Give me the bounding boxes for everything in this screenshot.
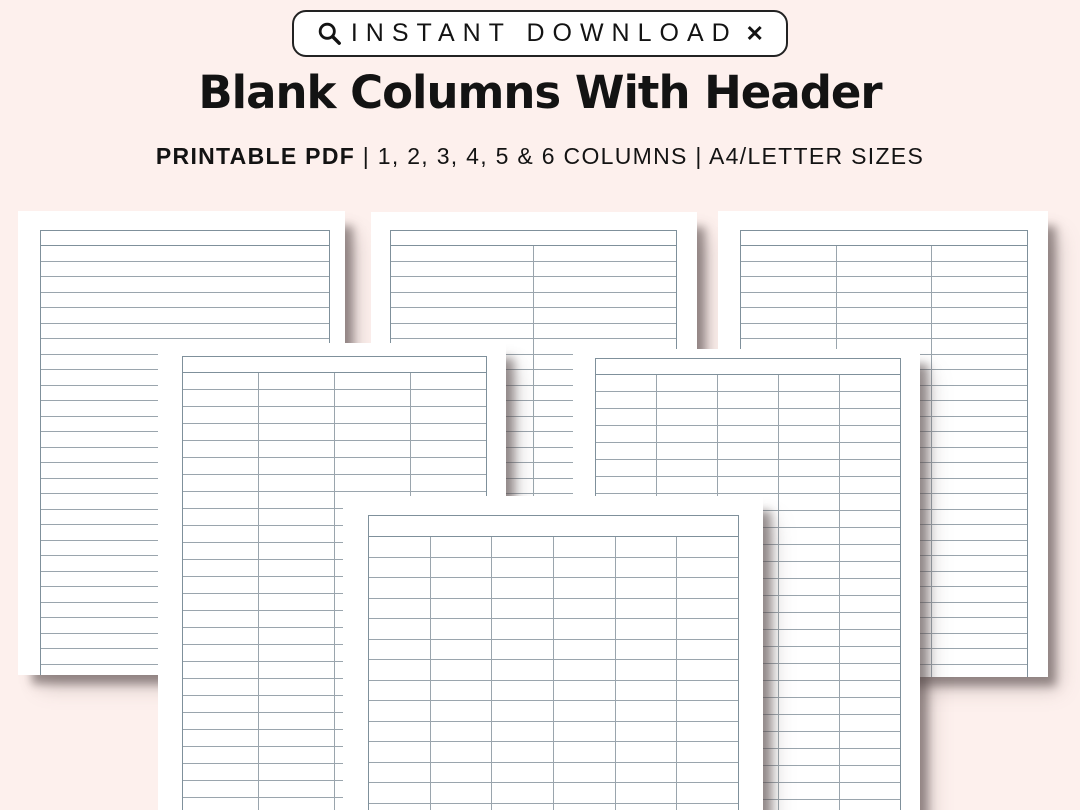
table-cell (183, 696, 259, 712)
table-cell (431, 701, 493, 721)
table-cell (41, 308, 329, 323)
table-cell (391, 324, 534, 339)
table-cell (369, 537, 431, 557)
table-cell (369, 619, 431, 639)
table-cell (779, 528, 840, 544)
table-cell (616, 537, 678, 557)
table-cell (616, 763, 678, 783)
table-cell (677, 722, 738, 742)
table-cell (183, 679, 259, 695)
table-cell (596, 426, 657, 442)
table-cell (335, 458, 411, 474)
table-cell (259, 543, 335, 559)
table-row (369, 701, 738, 722)
table-cell (718, 477, 779, 493)
table-cell (616, 599, 678, 619)
table-cell (431, 537, 493, 557)
table-cell (554, 558, 616, 578)
table-cell (840, 596, 900, 612)
table-cell (779, 715, 840, 731)
table-cell (779, 783, 840, 799)
table-cell (837, 324, 933, 339)
table-cell (677, 681, 738, 701)
table-cell (616, 722, 678, 742)
table-cell (554, 537, 616, 557)
table-header-row (41, 231, 329, 246)
table-row (183, 407, 486, 424)
table-cell (657, 460, 718, 476)
table-cell (596, 409, 657, 425)
table-cell (369, 681, 431, 701)
table-cell (183, 645, 259, 661)
table-cell (718, 375, 779, 391)
table-cell (259, 475, 335, 491)
table-cell (183, 764, 259, 780)
table-cell (932, 603, 1027, 618)
table-cell (369, 742, 431, 762)
table-cell (41, 324, 329, 339)
table-cell (837, 262, 933, 277)
table-cell (335, 424, 411, 440)
table-cell (183, 390, 259, 406)
table-cell (259, 628, 335, 644)
table-cell (411, 373, 486, 389)
table-cell (779, 375, 840, 391)
table-cell (779, 409, 840, 425)
table-row (391, 262, 676, 278)
table-cell (741, 324, 837, 339)
table-row (369, 783, 738, 804)
table-cell (431, 783, 493, 803)
table-cell (492, 681, 554, 701)
table-cell (534, 324, 676, 339)
table-cell (779, 392, 840, 408)
table-cell (183, 577, 259, 593)
table-cell (932, 572, 1027, 587)
table-cell (259, 764, 335, 780)
table-cell (718, 443, 779, 459)
table-cell (259, 577, 335, 593)
table-cell (492, 599, 554, 619)
table-cell (779, 664, 840, 680)
table-row (41, 293, 329, 309)
table-cell (840, 545, 900, 561)
table-cell (779, 766, 840, 782)
table-cell (840, 511, 900, 527)
table-cell (431, 578, 493, 598)
table-cell (779, 800, 840, 810)
table-cell (718, 460, 779, 476)
table-cell (677, 640, 738, 660)
table-cell (677, 701, 738, 721)
table-cell (616, 804, 678, 810)
table-cell (335, 475, 411, 491)
table-row (391, 246, 676, 262)
table-cell (677, 537, 738, 557)
table-cell (616, 640, 678, 660)
table-cell (183, 424, 259, 440)
table-cell (779, 681, 840, 697)
table-header-row (391, 231, 676, 246)
table-cell (779, 647, 840, 663)
table-cell (431, 640, 493, 660)
table-cell (431, 558, 493, 578)
table-row (183, 441, 486, 458)
table-cell (840, 698, 900, 714)
table-cell (840, 375, 900, 391)
table-cell (492, 558, 554, 578)
table-cell (779, 511, 840, 527)
table-cell (932, 339, 1027, 354)
table-cell (677, 578, 738, 598)
table-row (41, 308, 329, 324)
table-cell (554, 763, 616, 783)
table-cell (554, 619, 616, 639)
table-cell (369, 701, 431, 721)
table-cell (183, 509, 259, 525)
table-cell (741, 293, 837, 308)
table-cell (677, 783, 738, 803)
table-row (183, 373, 486, 390)
table-cell (840, 681, 900, 697)
table-cell (554, 742, 616, 762)
table-cell (677, 742, 738, 762)
table-row (596, 443, 900, 460)
table-cell (779, 460, 840, 476)
table-cell (741, 246, 837, 261)
table-cell (837, 308, 933, 323)
subtitle-rest: | 1, 2, 3, 4, 5 & 6 COLUMNS | A4/LETTER … (355, 143, 924, 169)
table-cell (431, 619, 493, 639)
table-cell (431, 722, 493, 742)
table-cell (779, 562, 840, 578)
table-cell (596, 392, 657, 408)
table-cell (259, 611, 335, 627)
table-cell (41, 277, 329, 292)
table-cell (259, 424, 335, 440)
table-cell (932, 587, 1027, 602)
table-cell (41, 262, 329, 277)
table-cell (718, 426, 779, 442)
table-row (741, 246, 1027, 262)
table-cell (492, 578, 554, 598)
table-cell (492, 619, 554, 639)
table-cell (932, 541, 1027, 556)
table-row (741, 293, 1027, 309)
table-cell (932, 494, 1027, 509)
table-cell (492, 640, 554, 660)
table-row (596, 375, 900, 392)
table-cell (554, 722, 616, 742)
table-row (596, 392, 900, 409)
table-cell (779, 732, 840, 748)
table-row (391, 277, 676, 293)
table-cell (677, 599, 738, 619)
table-cell (259, 594, 335, 610)
table-row (741, 324, 1027, 340)
table-cell (431, 681, 493, 701)
subtitle-lead: PRINTABLE PDF (156, 143, 355, 169)
table-cell (932, 386, 1027, 401)
table-cell (840, 783, 900, 799)
table-cell (431, 763, 493, 783)
table-cell (932, 277, 1027, 292)
table-cell (335, 390, 411, 406)
table-cell (932, 246, 1027, 261)
table-header-row (741, 231, 1027, 246)
table-cell (534, 262, 676, 277)
table-cell (492, 660, 554, 680)
table-cell (779, 630, 840, 646)
table-row (41, 246, 329, 262)
search-icon (316, 20, 343, 47)
table-cell (183, 781, 259, 797)
table-cell (840, 800, 900, 810)
table-cell (259, 441, 335, 457)
table-cell (183, 730, 259, 746)
table-row (369, 640, 738, 661)
table-cell (779, 749, 840, 765)
table-cell (369, 640, 431, 660)
table-cell (932, 355, 1027, 370)
table-cell (183, 373, 259, 389)
table-cell (259, 458, 335, 474)
table-row (596, 460, 900, 477)
table-cell (837, 246, 933, 261)
table-cell (932, 293, 1027, 308)
table-cell (932, 432, 1027, 447)
table-cell (431, 599, 493, 619)
table-cell (411, 424, 486, 440)
table-cell (335, 441, 411, 457)
table-row (369, 558, 738, 579)
table-row (183, 424, 486, 441)
table-cell (554, 701, 616, 721)
table-cell (616, 783, 678, 803)
table-cell (840, 766, 900, 782)
table-cell (492, 804, 554, 810)
table-cell (840, 579, 900, 595)
table-row (741, 308, 1027, 324)
listing-image: INSTANT DOWNLOAD ✕ Blank Columns With He… (0, 0, 1080, 810)
table-cell (259, 662, 335, 678)
table-cell (369, 599, 431, 619)
table-cell (183, 611, 259, 627)
page-title: Blank Columns With Header (0, 63, 1080, 123)
table-cell (840, 664, 900, 680)
table-cell (779, 443, 840, 459)
table-cell (183, 407, 259, 423)
table-cell (259, 373, 335, 389)
table-cell (741, 262, 837, 277)
table-cell (840, 528, 900, 544)
table-row (369, 578, 738, 599)
table-row (369, 599, 738, 620)
table-cell (554, 681, 616, 701)
table-cell (41, 246, 329, 261)
table-cell (259, 713, 335, 729)
table-cell (741, 277, 837, 292)
table-cell (259, 679, 335, 695)
table-cell (431, 804, 493, 810)
table-cell (492, 722, 554, 742)
table-header-row (369, 516, 738, 537)
table-cell (616, 660, 678, 680)
table-cell (932, 370, 1027, 385)
table-cell (932, 448, 1027, 463)
table-cell (183, 475, 259, 491)
table-cell (411, 441, 486, 457)
table-cell (677, 804, 738, 810)
table-cell (932, 401, 1027, 416)
table-cell (677, 660, 738, 680)
table-cell (369, 578, 431, 598)
table-cell (259, 407, 335, 423)
table-cell (391, 293, 534, 308)
table-cell (932, 525, 1027, 540)
table-cell (677, 619, 738, 639)
close-icon: ✕ (746, 23, 764, 45)
table-row (596, 409, 900, 426)
table-cell (391, 246, 534, 261)
table-cell (840, 613, 900, 629)
table-cell (492, 742, 554, 762)
table-cell (840, 477, 900, 493)
table-cell (369, 763, 431, 783)
table-cell (657, 443, 718, 459)
paper-mockup-6-columns (343, 496, 763, 810)
subtitle: PRINTABLE PDF | 1, 2, 3, 4, 5 & 6 COLUMN… (0, 141, 1080, 171)
table-cell (616, 681, 678, 701)
table-cell (840, 715, 900, 731)
table-cell (411, 390, 486, 406)
table-row (391, 293, 676, 309)
table-cell (779, 494, 840, 510)
table-cell (554, 599, 616, 619)
table-cell (779, 579, 840, 595)
table-cell (932, 665, 1027, 678)
table-cell (932, 417, 1027, 432)
table-header-row (596, 359, 900, 375)
table-cell (259, 645, 335, 661)
table-cell (840, 732, 900, 748)
table-cell (259, 747, 335, 763)
table-cell (391, 308, 534, 323)
table-row (369, 537, 738, 558)
table-cell (431, 660, 493, 680)
table-cell (840, 443, 900, 459)
table-cell (492, 763, 554, 783)
table-cell (657, 426, 718, 442)
table-cell (183, 543, 259, 559)
table-cell (259, 560, 335, 576)
table-cell (616, 742, 678, 762)
table-cell (779, 596, 840, 612)
table-cell (840, 426, 900, 442)
table-row (369, 660, 738, 681)
table-cell (369, 804, 431, 810)
table-cell (554, 640, 616, 660)
table-cell (932, 510, 1027, 525)
table-row (741, 262, 1027, 278)
table-cell (183, 560, 259, 576)
table-cell (411, 407, 486, 423)
blank-table-6-columns (368, 515, 739, 810)
table-row (41, 262, 329, 278)
table-cell (259, 730, 335, 746)
table-cell (657, 477, 718, 493)
table-cell (534, 308, 676, 323)
table-row (741, 277, 1027, 293)
table-cell (259, 509, 335, 525)
table-cell (840, 409, 900, 425)
table-cell (616, 558, 678, 578)
table-cell (657, 375, 718, 391)
table-cell (657, 392, 718, 408)
table-cell (534, 246, 676, 261)
table-cell (411, 475, 486, 491)
table-cell (932, 556, 1027, 571)
table-cell (183, 594, 259, 610)
table-cell (657, 409, 718, 425)
table-cell (41, 293, 329, 308)
table-cell (369, 722, 431, 742)
table-cell (616, 578, 678, 598)
table-cell (677, 558, 738, 578)
table-cell (369, 660, 431, 680)
table-cell (391, 277, 534, 292)
table-cell (391, 262, 534, 277)
table-cell (779, 477, 840, 493)
table-cell (259, 492, 335, 508)
table-row (369, 681, 738, 702)
table-cell (596, 477, 657, 493)
table-cell (779, 613, 840, 629)
table-cell (840, 647, 900, 663)
table-cell (718, 392, 779, 408)
table-cell (259, 798, 335, 810)
table-row (183, 475, 486, 492)
table-row (369, 742, 738, 763)
table-cell (718, 409, 779, 425)
table-row (183, 458, 486, 475)
table-cell (183, 798, 259, 810)
table-cell (616, 619, 678, 639)
table-row (596, 477, 900, 494)
table-row (41, 277, 329, 293)
table-cell (183, 747, 259, 763)
table-cell (840, 494, 900, 510)
table-cell (259, 781, 335, 797)
table-cell (183, 526, 259, 542)
table-row (369, 722, 738, 743)
table-cell (932, 649, 1027, 664)
table-cell (369, 783, 431, 803)
table-cell (534, 277, 676, 292)
table-cell (840, 562, 900, 578)
table-cell (932, 479, 1027, 494)
table-cell (596, 443, 657, 459)
table-header-row (183, 357, 486, 373)
table-cell (932, 634, 1027, 649)
table-row (369, 619, 738, 640)
table-cell (932, 324, 1027, 339)
table-cell (259, 390, 335, 406)
table-cell (554, 660, 616, 680)
table-cell (779, 698, 840, 714)
table-cell (837, 277, 933, 292)
table-cell (932, 463, 1027, 478)
